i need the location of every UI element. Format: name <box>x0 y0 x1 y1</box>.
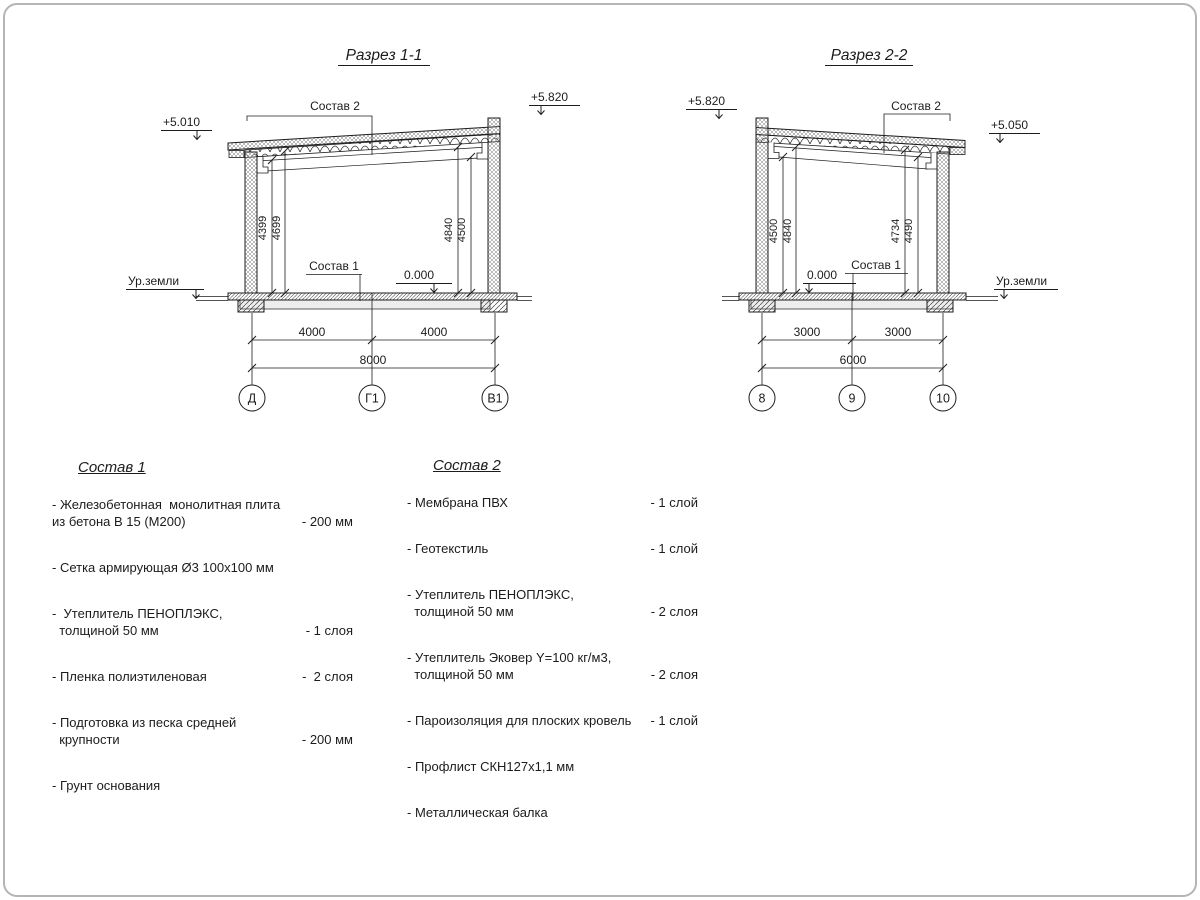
material-item: - Пароизоляция для плоских кровель - 1 с… <box>407 712 698 729</box>
sections-drawing: Разрез 1-1 +5.010 +5.820 <box>0 0 1200 430</box>
material-line: крупности <box>52 731 236 748</box>
material-line: - Пароизоляция для плоских кровель <box>407 712 631 729</box>
material-line: - Железобетонная монолитная плита <box>52 496 280 513</box>
material-qty: - 1 слой <box>650 712 698 729</box>
elevation-left: +5.010 <box>163 115 200 129</box>
dim-4840: 4840 <box>443 218 455 242</box>
material-line: - Утеплитель ПЕНОПЛЭКС, <box>407 586 574 603</box>
material-line: - Утеплитель Эковер Y=100 кг/м3, <box>407 649 611 666</box>
span-dim: 4000 <box>421 325 448 339</box>
material-qty: - 1 слой <box>650 494 698 511</box>
span-dim: 4000 <box>299 325 326 339</box>
material-qty: - 200 мм <box>302 731 353 748</box>
footing-right <box>927 300 953 312</box>
elevation-left: +5.820 <box>688 94 725 108</box>
section1-title: Разрез 1-1 <box>346 47 423 64</box>
ground-level-label: Ур.земли <box>128 274 179 288</box>
material-qty: - 2 слоя <box>651 666 698 683</box>
material-line: - Сетка армирующая Ø3 100х100 мм <box>52 559 274 576</box>
elevation-floor: 0.000 <box>807 268 837 282</box>
material-line: - Пленка полиэтиленовая <box>52 668 207 685</box>
dim-4840: 4840 <box>782 219 794 243</box>
composition-leaders: Состав 2 Состав 1 <box>845 99 950 301</box>
roof-slab <box>756 128 965 170</box>
steel-beam-right <box>477 143 488 159</box>
material-item: - Утеплитель ПЕНОПЛЭКС, толщиной 50 мм -… <box>407 586 698 620</box>
material-line: - Металлическая балка <box>407 804 548 821</box>
dim-4734: 4734 <box>890 219 902 243</box>
material-item: - Геотекстиль - 1 слой <box>407 540 698 557</box>
floor-slab <box>722 293 998 312</box>
total-dim: 8000 <box>360 353 387 367</box>
floor-slab <box>196 293 532 312</box>
axis-label: 10 <box>936 392 950 406</box>
material-qty: - 2 слоя <box>302 668 353 685</box>
elevation-right: +5.820 <box>531 90 568 104</box>
material-item: - Утеплитель ПЕНОПЛЭКС, толщиной 50 мм -… <box>52 605 353 639</box>
dim-4699: 4699 <box>271 216 283 240</box>
ground-level-label: Ур.земли <box>996 274 1047 288</box>
material-qty: - 1 слоя <box>306 622 353 639</box>
dim-4500: 4500 <box>768 219 780 243</box>
left-wall <box>756 118 768 293</box>
floor-composition-label: Состав 1 <box>309 259 359 273</box>
footing-left <box>749 300 775 312</box>
footing-right <box>481 300 507 312</box>
composition-leaders: Состав 2 Состав 1 <box>247 99 372 301</box>
material-qty: - 2 слоя <box>651 603 698 620</box>
dim-4500: 4500 <box>456 218 468 242</box>
right-wall <box>937 152 949 293</box>
steel-beam-left <box>257 157 268 173</box>
axis-label: В1 <box>487 392 502 406</box>
axis-label: 9 <box>849 392 856 406</box>
section-2-2: Разрез 2-2 +5.820 +5.050 <box>686 47 1058 411</box>
composition2-title: Состав 2 <box>433 457 698 474</box>
axis-bubbles: 8 9 10 <box>749 385 956 411</box>
material-item: - Сетка армирующая Ø3 100х100 мм <box>52 559 353 576</box>
material-line: - Геотекстиль <box>407 540 488 557</box>
dim-4490: 4490 <box>903 219 915 243</box>
material-line: толщиной 50 мм <box>407 603 574 620</box>
material-line: - Утеплитель ПЕНОПЛЭКС, <box>52 605 222 622</box>
material-item: - Профлист СКН127х1,1 мм <box>407 758 698 775</box>
right-wall <box>488 118 500 293</box>
section2-title: Разрез 2-2 <box>831 47 908 64</box>
roof-slab <box>228 127 500 174</box>
material-item: - Железобетонная монолитная плитаиз бето… <box>52 496 353 530</box>
composition1-list: Состав 1 - Железобетонная монолитная пли… <box>52 459 353 794</box>
material-line: - Профлист СКН127х1,1 мм <box>407 758 574 775</box>
steel-beam-right <box>926 153 937 169</box>
composition1-title: Состав 1 <box>78 459 353 476</box>
composition2-list: Состав 2 - Мембрана ПВХ - 1 слой - Геоте… <box>407 457 698 821</box>
material-item: - Утеплитель Эковер Y=100 кг/м3, толщино… <box>407 649 698 683</box>
section-1-1: Разрез 1-1 +5.010 +5.820 <box>126 47 580 411</box>
roof-composition-label: Состав 2 <box>891 99 941 113</box>
material-item: - Мембрана ПВХ - 1 слой <box>407 494 698 511</box>
elevation-floor: 0.000 <box>404 268 434 282</box>
material-line: - Мембрана ПВХ <box>407 494 508 511</box>
elevation-right: +5.050 <box>991 118 1028 132</box>
axis-label: Д <box>248 392 257 406</box>
span-dim: 3000 <box>885 325 912 339</box>
material-item: - Грунт основания <box>52 777 353 794</box>
left-wall <box>245 152 257 293</box>
dim-4399: 4399 <box>257 216 269 240</box>
axis-label: 8 <box>759 392 766 406</box>
material-line: - Подготовка из песка средней <box>52 714 236 731</box>
floor-composition-label: Состав 1 <box>851 258 901 272</box>
material-line: толщиной 50 мм <box>52 622 222 639</box>
material-item: - Металлическая балка <box>407 804 698 821</box>
span-dim: 3000 <box>794 325 821 339</box>
material-qty: - 1 слой <box>650 540 698 557</box>
material-line: толщиной 50 мм <box>407 666 611 683</box>
roof-composition-label: Состав 2 <box>310 99 360 113</box>
material-qty: - 200 мм <box>302 513 353 530</box>
vertical-dimensions: 4399 4699 4840 4500 <box>257 143 475 297</box>
footing-left <box>238 300 264 312</box>
axis-label: Г1 <box>365 392 379 406</box>
steel-beam-left <box>768 143 779 159</box>
material-line: - Грунт основания <box>52 777 160 794</box>
total-dim: 6000 <box>840 353 867 367</box>
material-item: - Пленка полиэтиленовая - 2 слоя <box>52 668 353 685</box>
axis-bubbles: Д Г1 В1 <box>239 385 508 411</box>
material-item: - Подготовка из песка средней крупности … <box>52 714 353 748</box>
material-line: из бетона В 15 (М200) <box>52 513 280 530</box>
